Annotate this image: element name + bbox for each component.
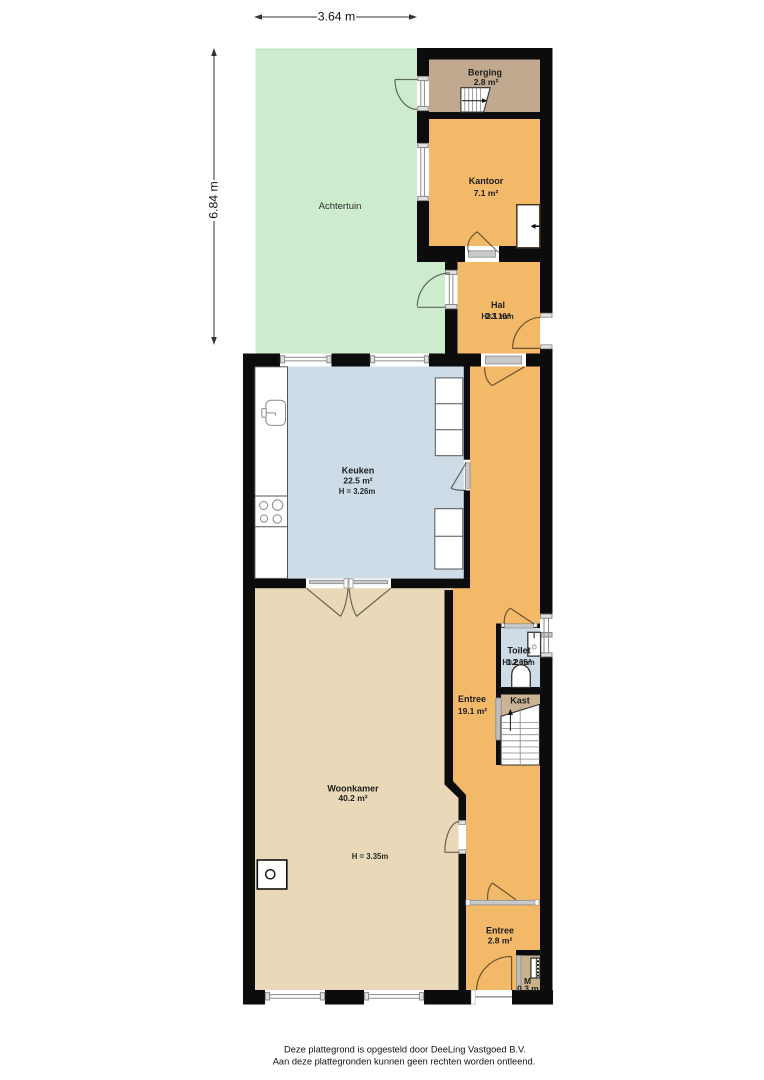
svg-text:Deze plattegrond is opgesteld: Deze plattegrond is opgesteld door DeeLi… — [284, 1045, 526, 1055]
svg-text:Toilet: Toilet — [507, 646, 530, 656]
svg-text:22.5 m²: 22.5 m² — [343, 475, 372, 485]
svg-text:Entree: Entree — [486, 926, 514, 936]
svg-text:1.2 m²: 1.2 m² — [507, 657, 532, 667]
svg-text:Keuken: Keuken — [342, 466, 375, 476]
svg-text:7.1 m²: 7.1 m² — [474, 188, 499, 198]
svg-text:H = 3.26m: H = 3.26m — [339, 487, 376, 496]
svg-text:Hal: Hal — [491, 300, 505, 310]
svg-text:2.8 m²: 2.8 m² — [474, 77, 499, 87]
svg-text:Entree: Entree — [458, 694, 486, 704]
svg-text:Achtertuin: Achtertuin — [319, 201, 362, 212]
svg-text:3.64 m: 3.64 m — [318, 10, 356, 24]
svg-text:2.8 m²: 2.8 m² — [488, 936, 513, 946]
svg-text:40.2 m²: 40.2 m² — [338, 793, 367, 803]
svg-text:Kast: Kast — [510, 696, 530, 706]
svg-text:Kantoor: Kantoor — [469, 176, 504, 186]
svg-text:0.3 m: 0.3 m — [517, 984, 539, 994]
svg-text:Aan deze plattegronden kunnen: Aan deze plattegronden kunnen geen recht… — [273, 1057, 536, 1067]
svg-text:H = 3.35m: H = 3.35m — [352, 852, 389, 861]
svg-text:19.1 m²: 19.1 m² — [458, 706, 487, 716]
svg-text:6.84 m: 6.84 m — [207, 181, 221, 219]
svg-text:2.1 m²: 2.1 m² — [486, 311, 511, 321]
